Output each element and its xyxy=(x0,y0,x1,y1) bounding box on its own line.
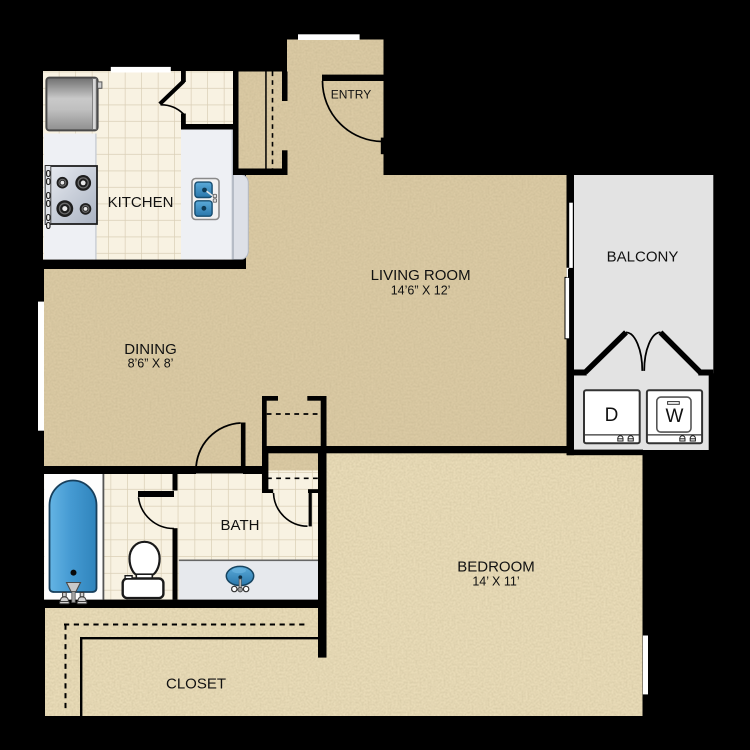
svg-text:D: D xyxy=(605,405,619,426)
svg-text:LIVING ROOM: LIVING ROOM xyxy=(371,267,471,284)
svg-text:BEDROOM: BEDROOM xyxy=(457,558,535,575)
svg-text:14’ X 11’: 14’ X 11’ xyxy=(472,575,519,589)
svg-text:BALCONY: BALCONY xyxy=(607,249,679,266)
svg-text:BATH: BATH xyxy=(221,517,260,534)
svg-text:KITCHEN: KITCHEN xyxy=(108,194,174,211)
svg-text:CLOSET: CLOSET xyxy=(166,676,226,693)
svg-text:14’6” X 12’: 14’6” X 12’ xyxy=(391,284,451,298)
svg-text:W: W xyxy=(666,406,684,427)
svg-text:ENTRY: ENTRY xyxy=(331,88,371,102)
svg-text:8’6” X 8’: 8’6” X 8’ xyxy=(128,357,174,371)
svg-text:DINING: DINING xyxy=(124,341,177,358)
